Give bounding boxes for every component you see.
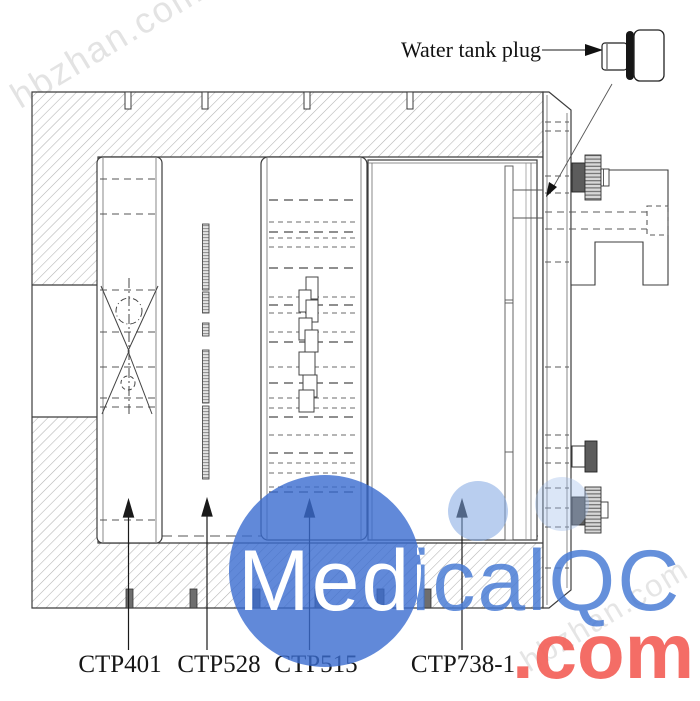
plug-oring — [626, 31, 634, 80]
ctp528-label: CTP528 — [177, 651, 260, 679]
tank-fill-tube — [505, 166, 513, 540]
pin-middle — [572, 441, 597, 472]
ctp401-label: CTP401 — [78, 651, 161, 679]
water-tank-plug-label: Water tank plug — [401, 37, 541, 63]
module-ctp401 — [97, 157, 162, 543]
watermark-circle-faint — [535, 477, 589, 531]
watermark-circle-small — [448, 481, 508, 541]
ctp738-1-label: CTP738-1 — [411, 651, 515, 679]
module-ctp738-1-tank — [368, 160, 543, 540]
module-ctp528-beads — [203, 224, 210, 479]
brand-watermark-suffix: .com — [512, 612, 694, 690]
phantom-diagram-page: hbzhan.com hbzhan.com — [0, 0, 700, 701]
callout-arrowhead — [585, 44, 603, 56]
